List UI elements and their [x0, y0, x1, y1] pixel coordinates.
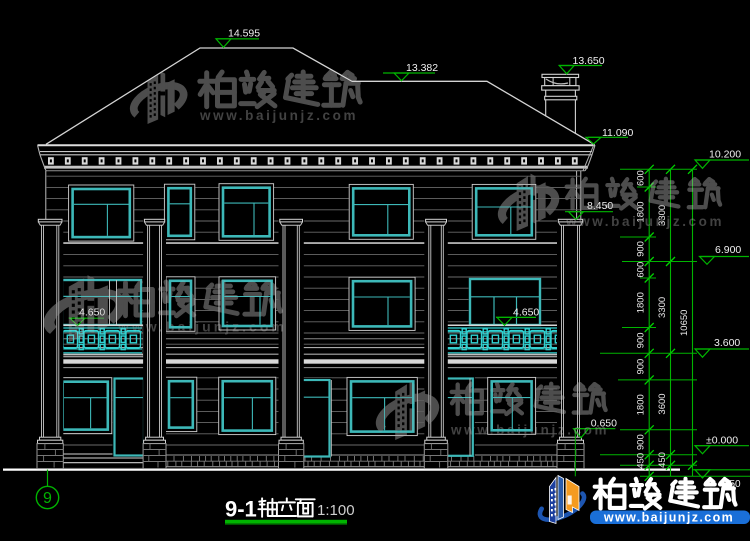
svg-text:4.650: 4.650: [513, 307, 539, 319]
svg-text:9-1: 9-1: [225, 497, 257, 522]
svg-text:13.382: 13.382: [406, 62, 438, 74]
svg-text:www.baijunjz.com: www.baijunjz.com: [199, 108, 358, 123]
svg-text:www.baijunjz.com: www.baijunjz.com: [117, 319, 287, 335]
svg-text:3600: 3600: [657, 393, 668, 414]
svg-text:450: 450: [657, 452, 668, 468]
svg-text:600: 600: [636, 262, 647, 278]
svg-text:9: 9: [43, 490, 52, 507]
svg-text:900: 900: [636, 241, 647, 257]
svg-text:450: 450: [636, 453, 647, 469]
svg-text:3.600: 3.600: [714, 337, 740, 349]
svg-text:6.900: 6.900: [715, 244, 741, 256]
svg-text:3300: 3300: [657, 297, 668, 318]
svg-text:900: 900: [636, 359, 647, 375]
svg-text:www.baijunjz.com: www.baijunjz.com: [603, 510, 734, 524]
svg-text:1:100: 1:100: [317, 502, 355, 519]
svg-text:900: 900: [636, 332, 647, 348]
svg-text:900: 900: [636, 434, 647, 450]
svg-text:www.baijunjz.com: www.baijunjz.com: [565, 214, 724, 229]
svg-text:www.baijunjz.com: www.baijunjz.com: [450, 423, 609, 438]
svg-text:10.200: 10.200: [709, 149, 741, 161]
svg-text:600: 600: [636, 170, 647, 186]
svg-text:14.595: 14.595: [228, 28, 260, 40]
svg-text:±0.000: ±0.000: [706, 435, 738, 447]
svg-text:1800: 1800: [636, 292, 647, 313]
svg-text:10650: 10650: [679, 310, 690, 336]
svg-text:1800: 1800: [636, 394, 647, 415]
